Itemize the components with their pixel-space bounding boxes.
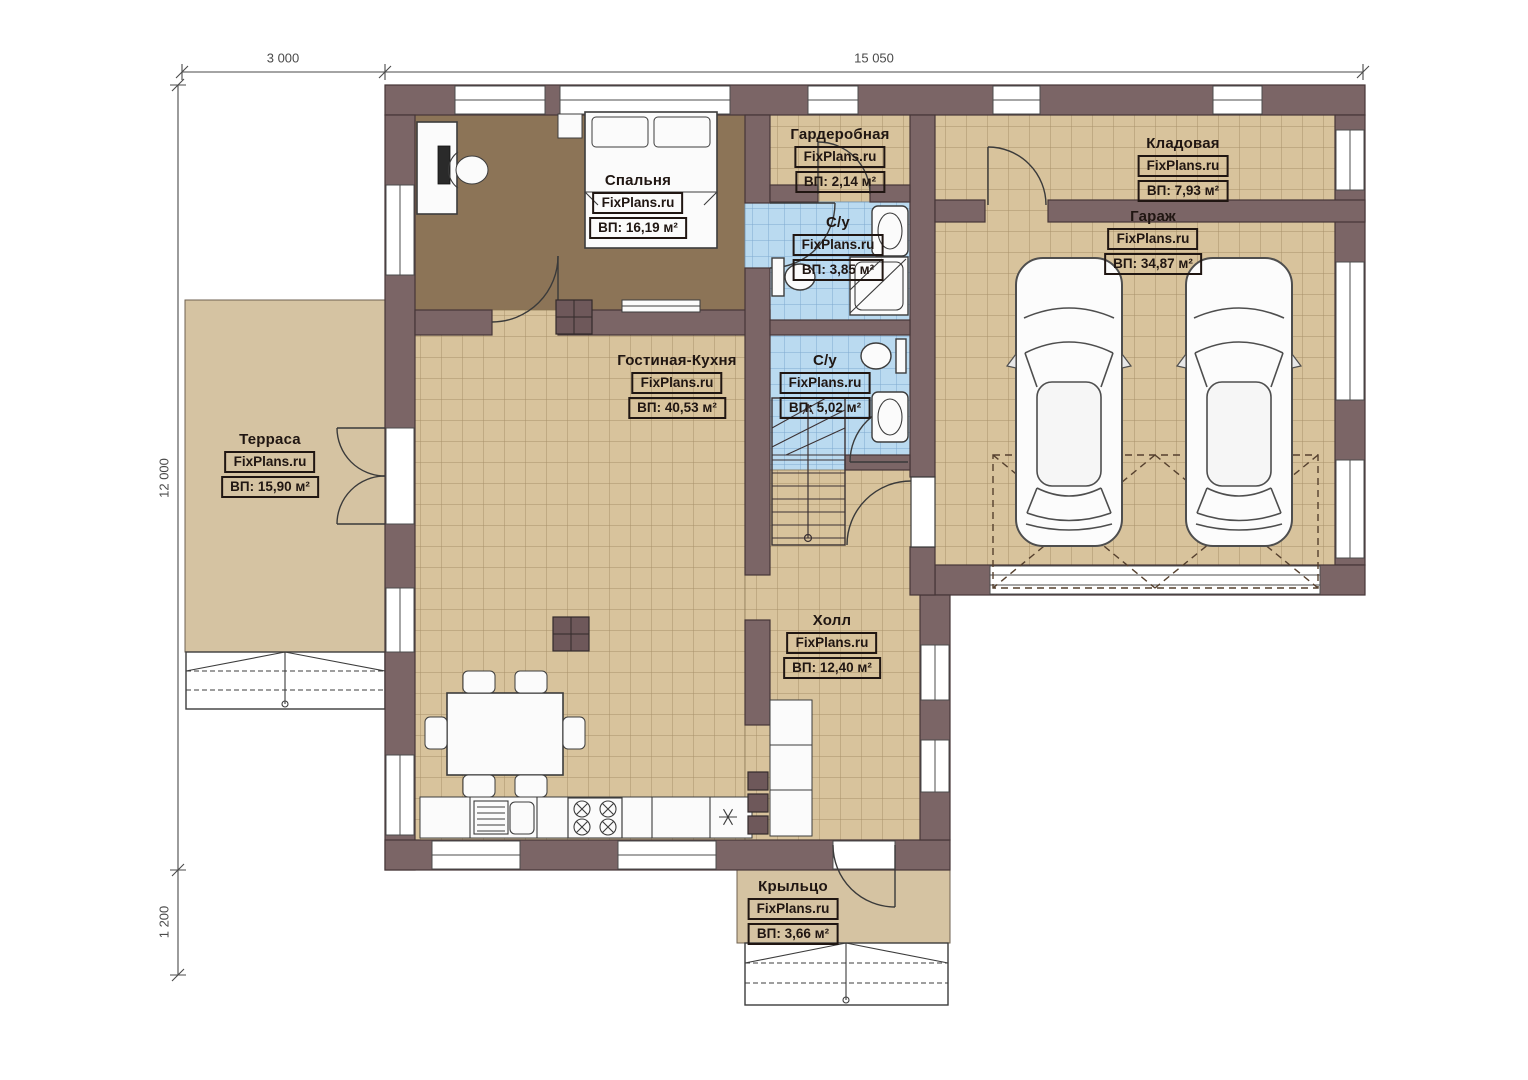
room-area: ВП: 3,85 м² <box>793 259 883 281</box>
dining-table <box>447 693 563 775</box>
room-name: Спальня <box>589 172 687 189</box>
garage-gate <box>990 566 1320 594</box>
room-name: Крыльцо <box>748 878 839 895</box>
room-watermark: FixPlans.ru <box>1138 155 1229 177</box>
room-label-bath1: С/у FixPlans.ru ВП: 3,85 м² <box>793 214 884 281</box>
car-1 <box>1007 258 1131 546</box>
room-watermark: FixPlans.ru <box>593 192 684 214</box>
room-area: ВП: 3,66 м² <box>748 923 838 945</box>
room-name: Кладовая <box>1138 135 1229 152</box>
room-name: С/у <box>780 352 871 369</box>
room-area: ВП: 40,53 м² <box>628 397 726 419</box>
room-area: ВП: 15,90 м² <box>221 476 319 498</box>
dim-top-left: 3 000 <box>267 51 300 66</box>
room-watermark: FixPlans.ru <box>225 451 316 473</box>
terrace-area <box>185 300 385 709</box>
room-watermark: FixPlans.ru <box>1108 228 1199 250</box>
room-area: ВП: 16,19 м² <box>589 217 687 239</box>
chimney-post-bedroom <box>556 300 592 334</box>
room-label-wardrobe: Гардеробная FixPlans.ru ВП: 2,14 м² <box>790 126 889 193</box>
dim-left: 12 000 <box>157 458 172 498</box>
room-name: Холл <box>783 612 881 629</box>
room-name: Гараж <box>1104 208 1202 225</box>
porch-steps <box>745 943 948 1005</box>
chimney-post-living <box>553 617 589 651</box>
room-area: ВП: 7,93 м² <box>1138 180 1228 202</box>
terrace-steps <box>186 652 385 709</box>
computer-monitor <box>438 146 450 184</box>
room-name: Гардеробная <box>790 126 889 143</box>
desk-chair <box>456 156 488 184</box>
nightstand <box>558 114 582 138</box>
room-area: ВП: 2,14 м² <box>795 171 885 193</box>
oven-stack <box>748 772 768 834</box>
room-name: Гостиная-Кухня <box>617 352 736 369</box>
room-label-garage: Гараж FixPlans.ru ВП: 34,87 м² <box>1104 208 1202 275</box>
car-2 <box>1177 258 1301 546</box>
room-watermark: FixPlans.ru <box>780 372 871 394</box>
room-label-bath2: С/у FixPlans.ru ВП: 5,02 м² <box>780 352 871 419</box>
floor-plan: 3 000 15 050 12 000 1 200 Спальня FixPla… <box>0 0 1528 1080</box>
room-label-bedroom: Спальня FixPlans.ru ВП: 16,19 м² <box>589 172 687 239</box>
room-label-storage: Кладовая FixPlans.ru ВП: 7,93 м² <box>1138 135 1229 202</box>
room-area: ВП: 5,02 м² <box>780 397 870 419</box>
room-watermark: FixPlans.ru <box>748 898 839 920</box>
room-label-hall: Холл FixPlans.ru ВП: 12,40 м² <box>783 612 881 679</box>
dim-bottom-left: 1 200 <box>157 906 172 939</box>
room-label-living-kitchen: Гостиная-Кухня FixPlans.ru ВП: 40,53 м² <box>617 352 736 419</box>
room-watermark: FixPlans.ru <box>795 146 886 168</box>
room-area: ВП: 12,40 м² <box>783 657 881 679</box>
room-watermark: FixPlans.ru <box>787 632 878 654</box>
room-watermark: FixPlans.ru <box>793 234 884 256</box>
kitchen-counter <box>420 797 752 838</box>
room-name: Терраса <box>221 431 319 448</box>
room-area: ВП: 34,87 м² <box>1104 253 1202 275</box>
room-label-terrace: Терраса FixPlans.ru ВП: 15,90 м² <box>221 431 319 498</box>
dim-top-main: 15 050 <box>854 51 894 66</box>
room-watermark: FixPlans.ru <box>632 372 723 394</box>
sink <box>872 392 908 442</box>
room-label-porch: Крыльцо FixPlans.ru ВП: 3,66 м² <box>748 878 839 945</box>
tall-cabinet <box>770 700 812 836</box>
porch-door-opening <box>833 841 895 869</box>
terrace-door-opening <box>386 428 414 524</box>
room-name: С/у <box>793 214 884 231</box>
